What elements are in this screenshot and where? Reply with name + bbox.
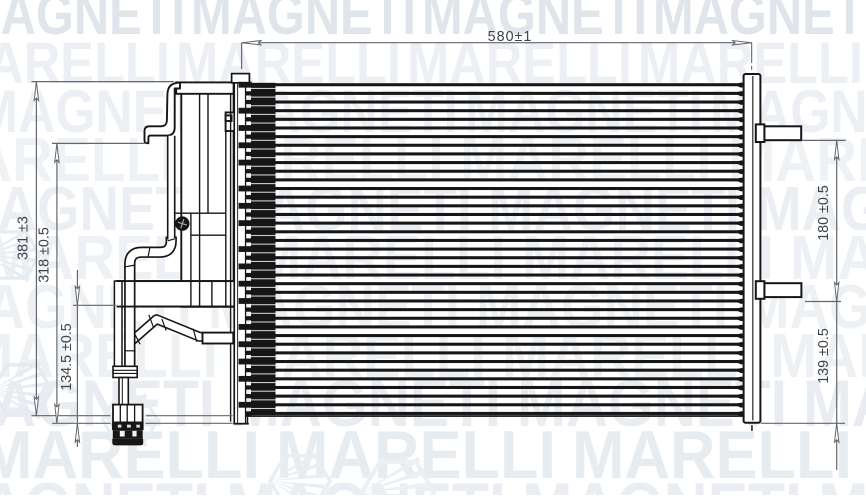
svg-text:180 ±0.5: 180 ±0.5 [816, 185, 832, 241]
svg-text:MAGNETI: MAGNETI [522, 469, 802, 495]
svg-text:318 ±0.5: 318 ±0.5 [37, 227, 53, 283]
svg-text:MAGNETI: MAGNETI [0, 469, 210, 495]
svg-text:580±1: 580±1 [488, 29, 533, 45]
svg-text:381 ±3: 381 ±3 [16, 216, 32, 260]
svg-text:139 ±0.5: 139 ±0.5 [816, 328, 832, 384]
svg-text:134.5 ±0.5: 134.5 ±0.5 [59, 323, 75, 391]
svg-text:MAGNETI: MAGNETI [818, 469, 866, 495]
